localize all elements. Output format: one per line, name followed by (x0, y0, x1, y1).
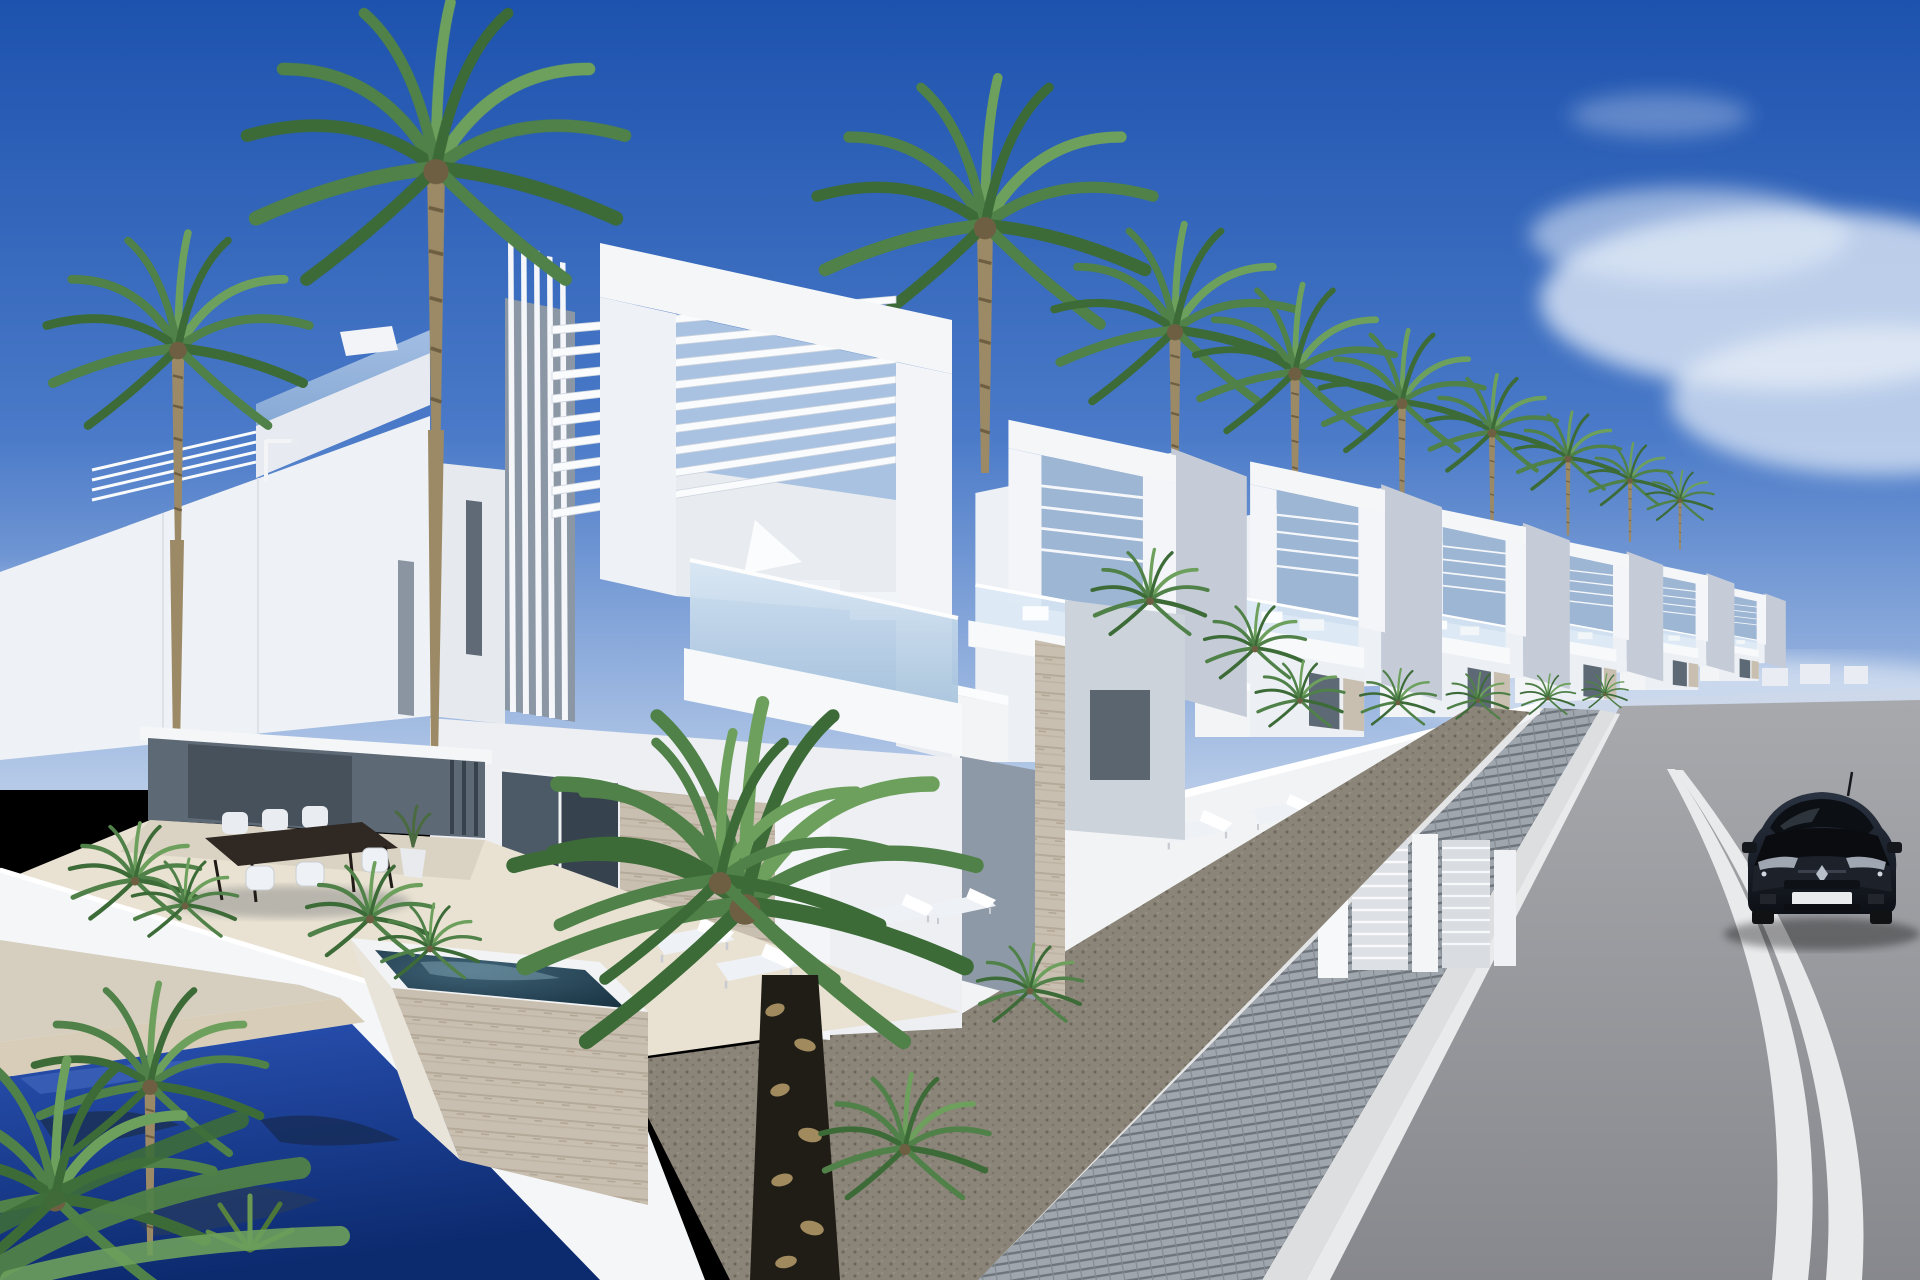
gap-window (1090, 690, 1150, 780)
lower-intake (1784, 904, 1860, 911)
link-window (466, 500, 482, 656)
drl-left (1762, 872, 1767, 877)
license-plate (1792, 892, 1852, 906)
window-slit (398, 560, 414, 716)
render-canvas (0, 0, 1920, 1280)
gate-panel-2 (1442, 840, 1490, 968)
car-wheel-right (1870, 910, 1892, 924)
car-grille (1784, 880, 1860, 889)
portal-right-leg (896, 362, 952, 630)
car-mirror-right (1887, 842, 1902, 853)
gate-pillar-3 (1494, 850, 1516, 966)
architectural-render (0, 0, 1920, 1280)
drl-right (1878, 872, 1883, 877)
gate-pillar-2 (1412, 834, 1438, 972)
car-wheel-left (1752, 910, 1774, 924)
fog-right (1868, 894, 1884, 904)
portal-left-leg (600, 297, 676, 596)
car-mirror-left (1742, 842, 1757, 853)
fog-left (1760, 894, 1776, 904)
